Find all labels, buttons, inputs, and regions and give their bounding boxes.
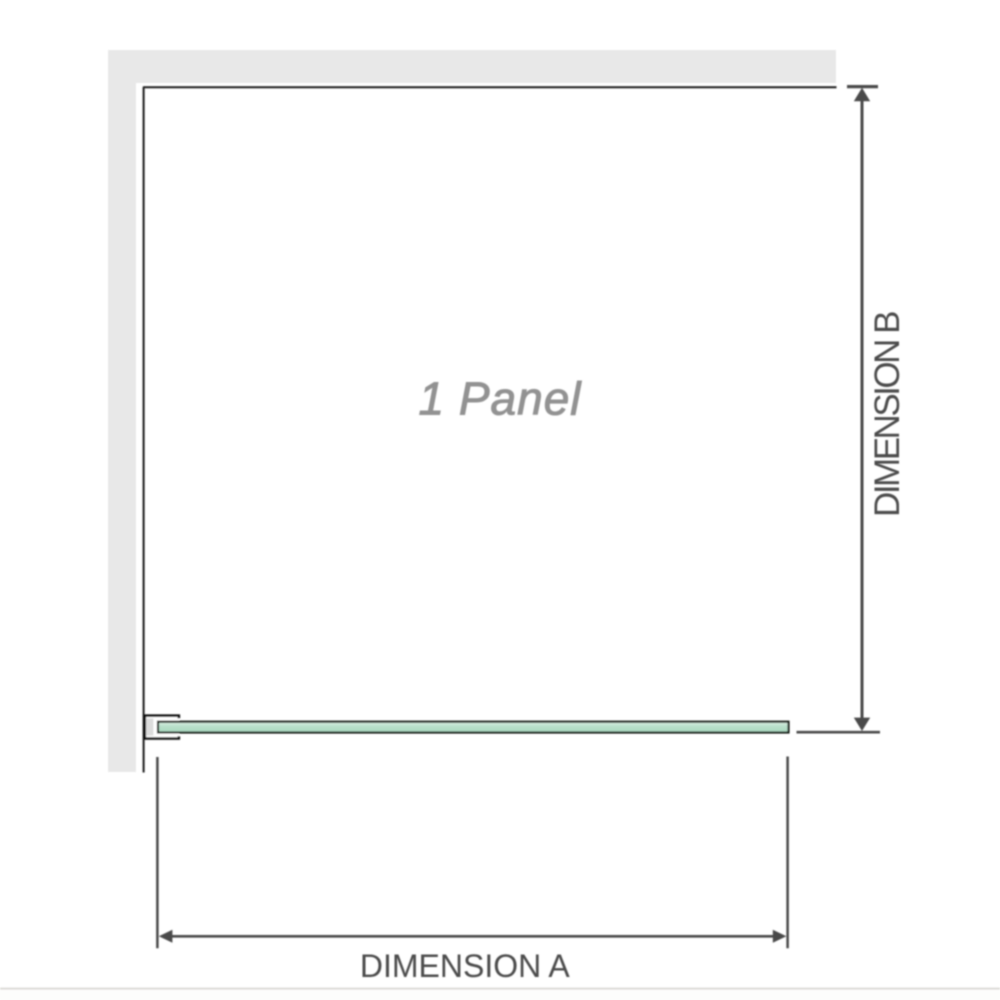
svg-text:1 Panel: 1 Panel bbox=[418, 373, 582, 425]
svg-text:DIMENSION A: DIMENSION A bbox=[360, 948, 570, 984]
svg-text:DIMENSION B: DIMENSION B bbox=[868, 312, 907, 517]
